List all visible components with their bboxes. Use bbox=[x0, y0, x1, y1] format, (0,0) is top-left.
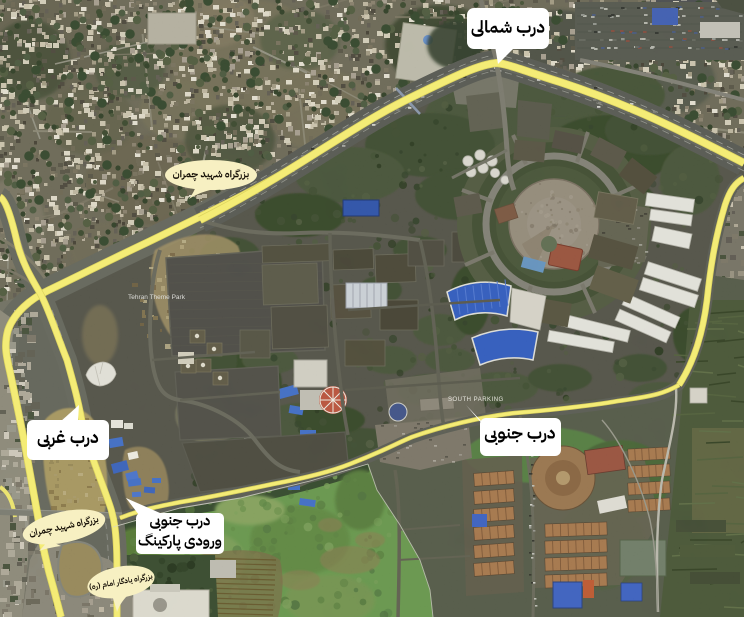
svg-text:Tehran Theme Park: Tehran Theme Park bbox=[128, 294, 186, 301]
svg-text:SOUTH PARKING: SOUTH PARKING bbox=[448, 397, 504, 403]
